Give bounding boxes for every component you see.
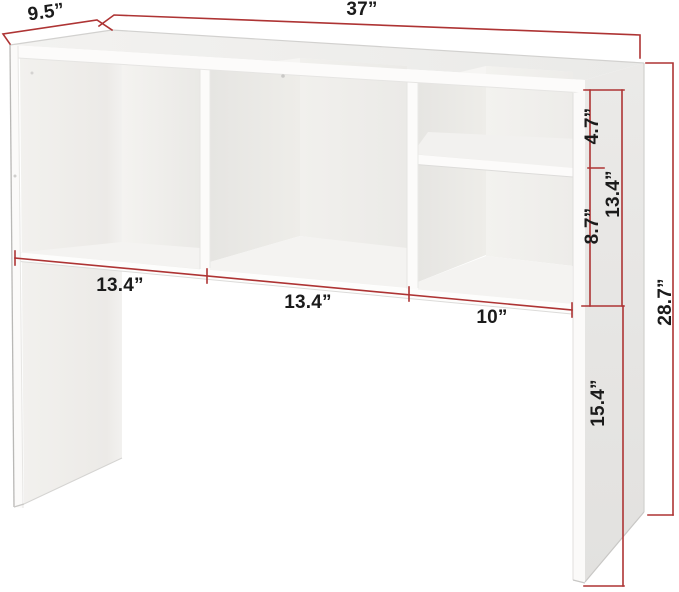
screw-hole: [14, 175, 17, 178]
lower-right-cubby-label: 8.7”: [582, 208, 603, 245]
height-dim-label: 28.7”: [655, 278, 676, 325]
hutch-diagram-svg: 9.5” 37” 28.7” 4.7” 13.4” 8.7” 15.4” 13.…: [0, 0, 679, 592]
divider1-front-edge: [200, 68, 210, 270]
screw-hole: [31, 72, 34, 75]
divider2-side-face: [418, 66, 486, 282]
right-leg-front-edge: [573, 91, 585, 583]
upper-right-cubby-label: 4.7”: [582, 108, 603, 145]
screw-hole: [281, 74, 285, 78]
left-cubby-width-label: 13.4”: [96, 275, 143, 296]
width-dim-label: 37”: [346, 0, 377, 20]
right-col-label: 13.4”: [603, 170, 624, 217]
leg-height-label: 15.4”: [588, 379, 609, 426]
cubby1-back-panel: [122, 62, 200, 270]
cubby2-back-panel: [300, 58, 407, 250]
middle-cubby-width-label: 13.4”: [284, 292, 331, 313]
depth-dim-label: 9.5”: [26, 0, 65, 25]
divider2-front-edge: [407, 81, 418, 290]
divider1-side-face: [210, 58, 300, 262]
dimension-diagram: 9.5” 37” 28.7” 4.7” 13.4” 8.7” 15.4” 13.…: [0, 0, 679, 592]
right-section-width-label: 10”: [476, 307, 507, 328]
